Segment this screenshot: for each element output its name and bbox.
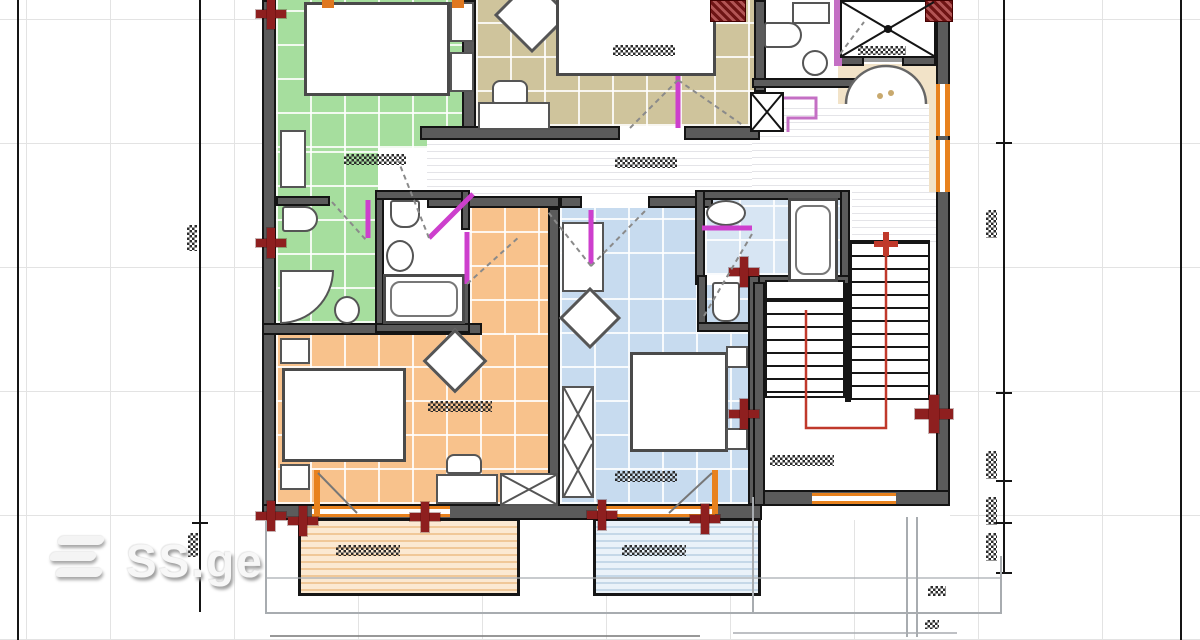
door-handle-dot [877, 93, 883, 99]
entry-door-arc [846, 66, 926, 104]
floor-plan-canvas: SS.ge [0, 0, 1200, 640]
balcony-door-diagonals [318, 473, 712, 513]
ssge-bars-icon [49, 552, 98, 561]
ssge-bars-icon [55, 568, 104, 577]
terrace-outline [266, 497, 1001, 637]
door-handle-dot [888, 90, 894, 96]
stair-travel-path [806, 250, 886, 428]
stair-path-cross [874, 232, 898, 256]
magenta-step-outline [784, 98, 816, 132]
door-swing-arcs [332, 22, 864, 316]
watermark-brand: SS.ge [126, 534, 264, 588]
door-leaves [368, 76, 752, 284]
ssge-bars-icon [57, 536, 106, 545]
ssge-logo [50, 534, 120, 586]
